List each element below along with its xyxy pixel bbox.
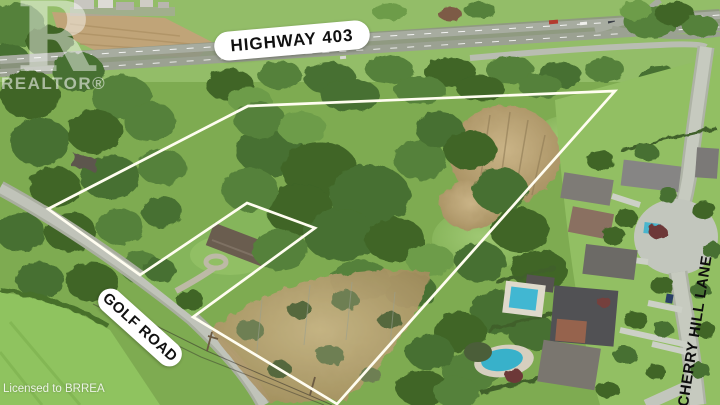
license-attribution-text: Licensed to BRREA — [3, 383, 105, 395]
aerial-scene — [0, 0, 720, 405]
aerial-listing-photo: HIGHWAY 403 GOLF ROAD CHERRY HILL LANE R… — [0, 0, 720, 405]
rect-pool — [509, 286, 538, 310]
